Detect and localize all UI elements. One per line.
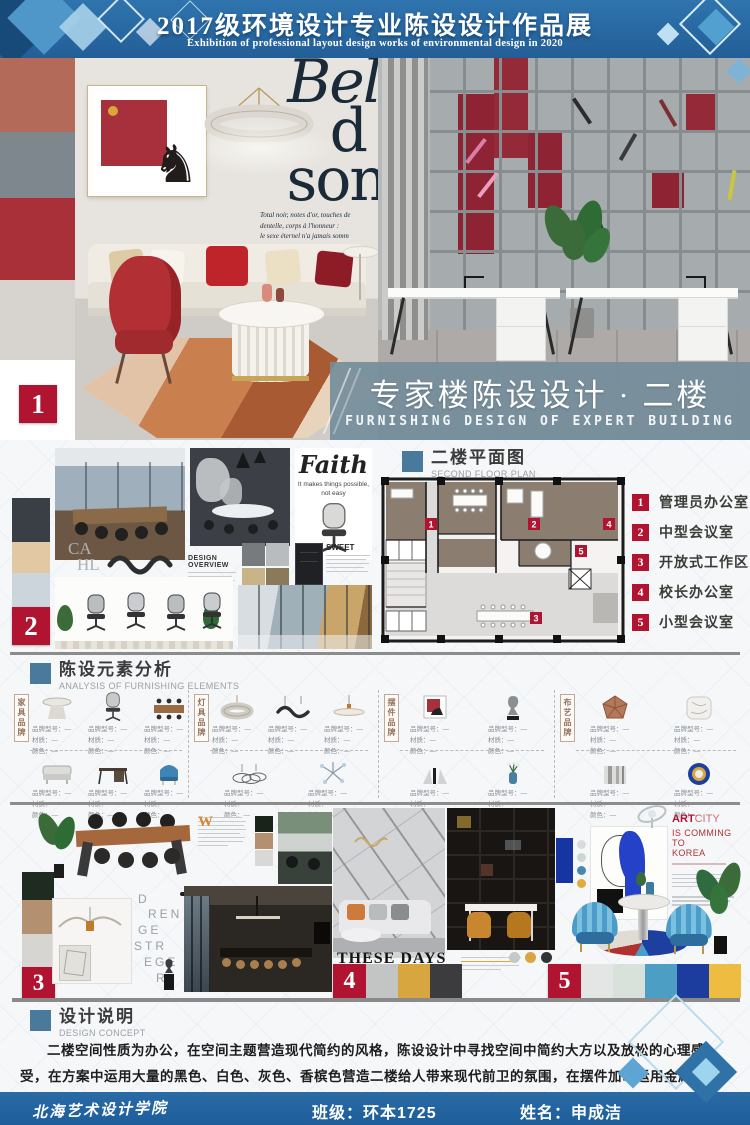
glass-table [618, 894, 668, 946]
p5-swatch-3 [645, 964, 677, 998]
panel-5: ARTCITY IS COMMING TO KOREA [548, 806, 744, 998]
caption-line: Total noir, notes d'or, touches de [260, 210, 378, 221]
section-1-badge: 1 [19, 385, 57, 423]
panel-4: THESE DAYS 4 [333, 806, 555, 998]
element-item: 品牌型号：— 材质：— 颜色：— [144, 688, 194, 757]
concept-header: 设计说明 DESIGN CONCEPT [30, 1008, 146, 1038]
group-fabric: 布艺品牌 品牌型号：— 材质：— 颜色：— 品牌型号：— 材质：— 颜色：— [560, 688, 742, 802]
disc-pendant-icon [324, 688, 374, 722]
faith-title: Faith [295, 450, 372, 479]
p3-mini-1 [255, 816, 273, 832]
dark-study-photo [447, 808, 555, 950]
plan-marker-1: 1 [425, 518, 437, 530]
item-spec: 品牌型号：— [88, 788, 138, 799]
office-chair-icon [88, 688, 138, 722]
header-square-icon [30, 1010, 51, 1031]
p5-swatch-5 [709, 964, 741, 998]
student-name: 姓名：申成洁 [520, 1099, 622, 1123]
polyhedron-ornament-icon [590, 688, 640, 722]
sweet-block: SWEET [326, 543, 372, 575]
group-lighting: 灯具品牌 品牌型号：— 材质：— 颜色：— 品牌型号：— 材质：— 颜色：— [194, 688, 374, 802]
element-item: 品牌型号：— 材质：— 颜色：— [88, 688, 138, 757]
side-table [343, 246, 377, 306]
painting-ornament-icon [410, 688, 460, 722]
legend-item: 1 管理员办公室 [632, 492, 744, 512]
plant-5 [696, 862, 744, 958]
sweet-title: SWEET [326, 543, 372, 552]
item-spec: 品牌型号：— [308, 788, 358, 799]
caption-line: dentelle, corps à l'honneur : [260, 221, 378, 232]
mustard-chair [467, 912, 491, 938]
pillow-icon [674, 688, 724, 722]
floor-plan-subtitle: SECOND FLOOR PLAN [431, 469, 536, 479]
sofa-icon [32, 756, 82, 786]
s2-swatch-2 [12, 542, 50, 573]
element-item: 品牌型号：— 材质：— 颜色：— [590, 688, 640, 757]
item-spec: 品牌型号：— [410, 788, 460, 799]
item-spec: 品牌型号：— [268, 724, 318, 735]
item-material: 材质：— [488, 735, 538, 746]
item-spec: 品牌型号：— [224, 788, 274, 799]
p3-mini-2 [255, 833, 273, 849]
elements-subtitle: ANALYSIS OF FURNISHING ELEMENTS [59, 681, 239, 691]
item-material: 材质：— [32, 735, 82, 746]
legend-item: 2 中型会议室 [632, 522, 744, 542]
decor-plate-icon [674, 756, 724, 786]
header-square-icon [402, 451, 423, 472]
group-label: 摆件品牌 [384, 694, 399, 742]
concept-subtitle: DESIGN CONCEPT [59, 1028, 146, 1038]
hero-title: 专家楼陈设设计 · 二楼 [330, 370, 750, 415]
scallop-chair-left [572, 902, 618, 950]
divider [12, 998, 740, 1002]
item-spec: 品牌型号：— [674, 788, 724, 799]
legend-label: 管理员办公室 [659, 492, 749, 512]
item-material: 材质：— [324, 735, 374, 746]
red-armchair [95, 256, 200, 390]
item-spec: 品牌型号：— [488, 724, 538, 735]
letters-line: HL [77, 557, 100, 573]
mini-dot [577, 853, 586, 862]
item-spec: 品牌型号：— [590, 724, 640, 735]
item-material: 材质：— [410, 735, 460, 746]
magazine-caption: Total noir, notes d'or, touches de dente… [260, 210, 378, 242]
p4-swatch-1 [366, 964, 398, 998]
office-chairs-photo [55, 577, 233, 649]
hero-swatch-1 [0, 58, 75, 132]
p5-swatch-4 [677, 964, 709, 998]
s2-swatch-1 [12, 498, 50, 542]
item-spec: 品牌型号：— [590, 788, 640, 799]
elements-title: 陈设元素分析 [59, 661, 239, 678]
letter: STR [134, 939, 167, 953]
mini-dot [577, 879, 586, 888]
concept-title: 设计说明 [59, 1008, 146, 1025]
legend-num: 4 [632, 584, 649, 601]
divider [10, 802, 740, 805]
art-title-light: CITY [695, 813, 720, 825]
floor-plan-header: 二楼平面图 SECOND FLOOR PLAN [402, 449, 536, 479]
dropcap: W [198, 814, 213, 831]
corridor-photo [238, 585, 372, 649]
element-item: 品牌型号：— 材质：— 颜色：— [488, 688, 538, 757]
ring-chandelier-icon [224, 756, 274, 786]
letter: REN [148, 907, 182, 921]
letter: D [138, 892, 150, 906]
legend-num: 3 [632, 554, 649, 571]
item-material: 材质：— [144, 735, 194, 746]
legend-item: 4 校长办公室 [632, 582, 744, 602]
sputnik-chandelier-icon [308, 756, 358, 786]
magazine-text-block: W [198, 814, 250, 849]
p4-swatch-2 [398, 964, 430, 998]
p4-swatch-3 [430, 964, 462, 998]
blue-accent-block [556, 838, 573, 883]
spinner-ornament-icon [634, 802, 670, 832]
meeting-room-photo-2 [190, 448, 290, 546]
magazine-word-3: son [286, 156, 378, 205]
conference-table-icon [144, 688, 194, 722]
lamp-sketch-card [52, 898, 132, 984]
hero-title-band: 专家楼陈设设计 · 二楼 FURNISHING DESIGN OF EXPERT… [330, 362, 750, 440]
wave-lamp-icon [106, 551, 182, 577]
section-2-badge: 2 [12, 607, 50, 645]
vase-decor [262, 284, 272, 302]
legend-label: 开放式工作区 [659, 552, 749, 572]
group-divider [554, 690, 555, 798]
plan-marker-5: 5 [575, 545, 587, 557]
group-ornaments: 摆件品牌 品牌型号：— 材质：— 颜色：— 品牌型号：— 材质：— 颜色：— [384, 688, 550, 802]
group-divider [378, 690, 379, 798]
bookends-icon [410, 756, 460, 786]
p3-swatch-2 [22, 900, 54, 934]
element-item: 品牌型号：— 材质：— 颜色：— [674, 688, 724, 757]
svg-text:4: 4 [606, 520, 611, 530]
faith-subtitle: It makes things possible, not easy [295, 480, 372, 498]
section-3-badge: 3 [22, 967, 55, 998]
group-label: 灯具品牌 [194, 694, 209, 742]
element-item: 品牌型号：— 材质：— 颜色：— [324, 688, 374, 757]
hero-swatch-3 [0, 198, 75, 280]
mini-dot [577, 866, 586, 875]
gray-lounge-photo [333, 808, 445, 958]
svg-text:1: 1 [428, 520, 433, 530]
letter: GE [138, 923, 161, 937]
hero-swatch-4 [0, 280, 75, 360]
elements-header: 陈设元素分析 ANALYSIS OF FURNISHING ELEMENTS [30, 661, 239, 691]
hero-subtitle: FURNISHING DESIGN OF EXPERT BUILDING [330, 414, 750, 429]
office-photo-small [278, 812, 332, 884]
item-material: 材质：— [674, 735, 724, 746]
conference-table-image [74, 814, 192, 886]
office-chair-icon [119, 583, 153, 639]
floor-plan-legend: 1 管理员办公室 2 中型会议室 3 开放式工作区 4 校长办公室 5 小型会议… [632, 492, 744, 642]
legend-label: 小型会议室 [659, 612, 734, 632]
legend-label: 中型会议室 [659, 522, 734, 542]
element-item: 品牌型号：— 材质：— 颜色：— [268, 688, 318, 757]
material-swatch [266, 543, 289, 566]
plan-marker-4: 4 [603, 518, 615, 530]
palette-dot [525, 952, 536, 963]
blue-armchair-icon [144, 756, 194, 786]
divider [10, 652, 740, 655]
material-swatch [242, 543, 265, 566]
top-banner: 2017级环境设计专业陈设设计作品展 Exhibition of profess… [0, 0, 750, 58]
overview-title: DESIGN OVERVIEW [188, 555, 238, 569]
banner-title: 2017级环境设计专业陈设设计作品展 [0, 6, 750, 42]
panel-3: 3 W [12, 806, 332, 998]
office-chair-icon [195, 583, 229, 639]
item-spec: 品牌型号：— [410, 724, 460, 735]
office-chair-icon [79, 585, 113, 641]
section-2-collage: Faith It makes things possible, not easy… [10, 445, 372, 652]
gold-squiggle-icon [351, 832, 391, 850]
bust-statue [162, 958, 176, 992]
typographic-letters: CA HL [68, 541, 100, 573]
poster: 2017级环境设计专业陈设设计作品展 Exhibition of profess… [0, 0, 750, 1125]
desk-icon [88, 756, 138, 786]
desk-left [388, 288, 560, 366]
p3-mini-3 [255, 850, 273, 866]
section-5-badge: 5 [548, 964, 581, 998]
svg-text:3: 3 [533, 614, 538, 624]
group-furniture: 家具品牌 品牌型号：— 材质：— 颜色：— 品牌型号：— 材质：— 颜色：— [14, 688, 186, 802]
pillow-gold-2 [265, 249, 302, 286]
p3-swatch-3 [22, 934, 54, 967]
legend-item: 5 小型会议室 [632, 612, 744, 632]
stone-chandelier-icon [212, 688, 262, 722]
element-item: 品牌型号：— 材质：— 颜色：— [32, 688, 82, 757]
item-material: 材质：— [590, 735, 640, 746]
bust-sculpture-icon [488, 688, 538, 722]
group-label: 布艺品牌 [560, 694, 575, 742]
p5-swatch-2 [613, 964, 645, 998]
item-spec: 品牌型号：— [32, 724, 82, 735]
elements-grid: 家具品牌 品牌型号：— 材质：— 颜色：— 品牌型号：— 材质：— 颜色：— [10, 688, 742, 802]
material-swatches [242, 543, 290, 591]
magazine-typography: Bel d son [243, 58, 378, 216]
item-spec: 品牌型号：— [324, 724, 374, 735]
item-material: 材质：— [88, 735, 138, 746]
item-material: 材质：— [268, 735, 318, 746]
item-spec: 品牌型号：— [674, 724, 724, 735]
palette-dot [509, 952, 520, 963]
p5-swatch-1 [581, 964, 613, 998]
item-material: 材质：— [212, 735, 262, 746]
pillow-red [206, 246, 248, 286]
curtain-fabric-icon [590, 756, 640, 786]
coffee-table [218, 300, 323, 396]
wing-lamp-icon [53, 905, 127, 945]
legend-num: 2 [632, 524, 649, 541]
round-table-icon [32, 688, 82, 722]
element-item: 品牌型号：— 材质：— 颜色：— [410, 688, 460, 757]
element-item: 品牌型号：— 材质：— 颜色：— [212, 688, 262, 757]
vase-decor-2 [276, 288, 284, 302]
plan-marker-3: 3 [530, 612, 542, 624]
hero-swatch-2 [0, 132, 75, 198]
item-spec: 品牌型号：— [488, 788, 538, 799]
group-label: 家具品牌 [14, 694, 29, 742]
item-spec: 品牌型号：— [88, 724, 138, 735]
office-chair-icon [159, 585, 193, 641]
svg-text:2: 2 [531, 520, 536, 530]
desk-right [566, 288, 738, 366]
dark-meeting-room-photo [184, 886, 332, 992]
legend-item: 3 开放式工作区 [632, 552, 744, 572]
item-spec: 品牌型号：— [212, 724, 262, 735]
header-square-icon [30, 663, 51, 684]
wave-pendant-icon [268, 688, 318, 722]
section-4-badge: 4 [333, 964, 366, 998]
floor-plan-title: 二楼平面图 [431, 449, 536, 466]
item-spec: 品牌型号：— [144, 788, 194, 799]
legend-num: 5 [632, 614, 649, 631]
svg-text:5: 5 [578, 547, 583, 557]
banner-subtitle: Exhibition of professional layout design… [0, 38, 750, 49]
plan-marker-2: 2 [528, 518, 540, 530]
art-line-3: KOREA [672, 848, 742, 858]
flower-vase-icon [488, 756, 538, 786]
art-title-bold: ART [672, 813, 695, 825]
art-line-2: IS COMMING TO [672, 828, 742, 848]
legend-num: 1 [632, 494, 649, 511]
s2-swatch-3 [12, 573, 50, 607]
class-label: 班级：环本1725 [312, 1099, 437, 1123]
mustard-chair [507, 912, 531, 938]
sun-dot [108, 106, 118, 116]
item-spec: 品牌型号：— [32, 788, 82, 799]
floor-plan-svg: 1 2 4 5 3 [381, 477, 625, 643]
legend-label: 校长办公室 [659, 582, 734, 602]
school-name: 北海艺术设计学院 [32, 1097, 169, 1123]
black-cabinet [295, 543, 323, 585]
mini-dot [577, 840, 586, 849]
footer-bar: 北海艺术设计学院 班级：环本1725 姓名：申成洁 [0, 1092, 750, 1125]
item-spec: 品牌型号：— [144, 724, 194, 735]
